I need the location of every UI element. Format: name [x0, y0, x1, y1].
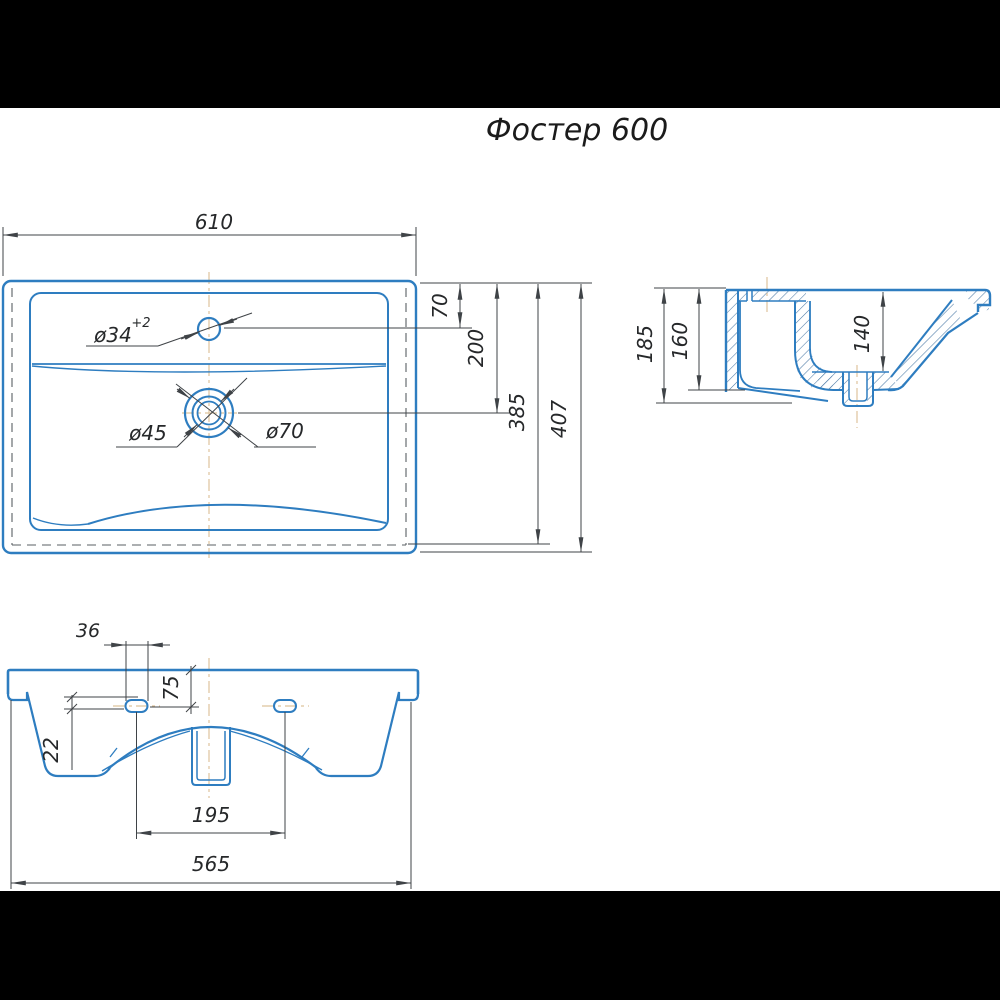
dim-565: 565 [192, 852, 230, 876]
dim-36: 36 [76, 620, 100, 642]
dim-140: 140 [850, 315, 874, 353]
technical-drawing-page: Фостер 600 [0, 0, 1000, 1000]
bottom-letterbox-bar [0, 891, 1000, 1000]
dim-70: 70 [428, 293, 452, 318]
dim-610: 610 [195, 210, 233, 234]
label-faucet-tolerance: +2 [131, 316, 150, 331]
front-view: 36 75 22 195 565 [8, 620, 418, 889]
dim-407: 407 [547, 400, 571, 438]
front-basin-arch [108, 727, 318, 769]
dim-75: 75 [159, 675, 183, 700]
top-view-dimensions [3, 227, 592, 552]
dim-195: 195 [192, 803, 230, 827]
front-view-outline [8, 670, 418, 785]
label-drain-inner: ø45 [128, 421, 167, 445]
dim-185: 185 [633, 325, 657, 363]
side-section-view: 185 160 140 [633, 277, 990, 428]
label-faucet-hole: ø34 [93, 323, 132, 347]
top-letterbox-bar [0, 0, 1000, 108]
dim-200: 200 [464, 329, 488, 367]
top-view: 610 70 200 385 407 ø34 +2 ø45 ø70 [3, 210, 592, 558]
label-drain-outer: ø70 [265, 419, 304, 443]
dim-385: 385 [505, 393, 529, 431]
dim-22: 22 [39, 737, 63, 762]
drawing-title: Фостер 600 [486, 113, 668, 148]
sink-drawing-svg: Фостер 600 [0, 0, 1000, 1000]
dim-160: 160 [668, 322, 692, 360]
